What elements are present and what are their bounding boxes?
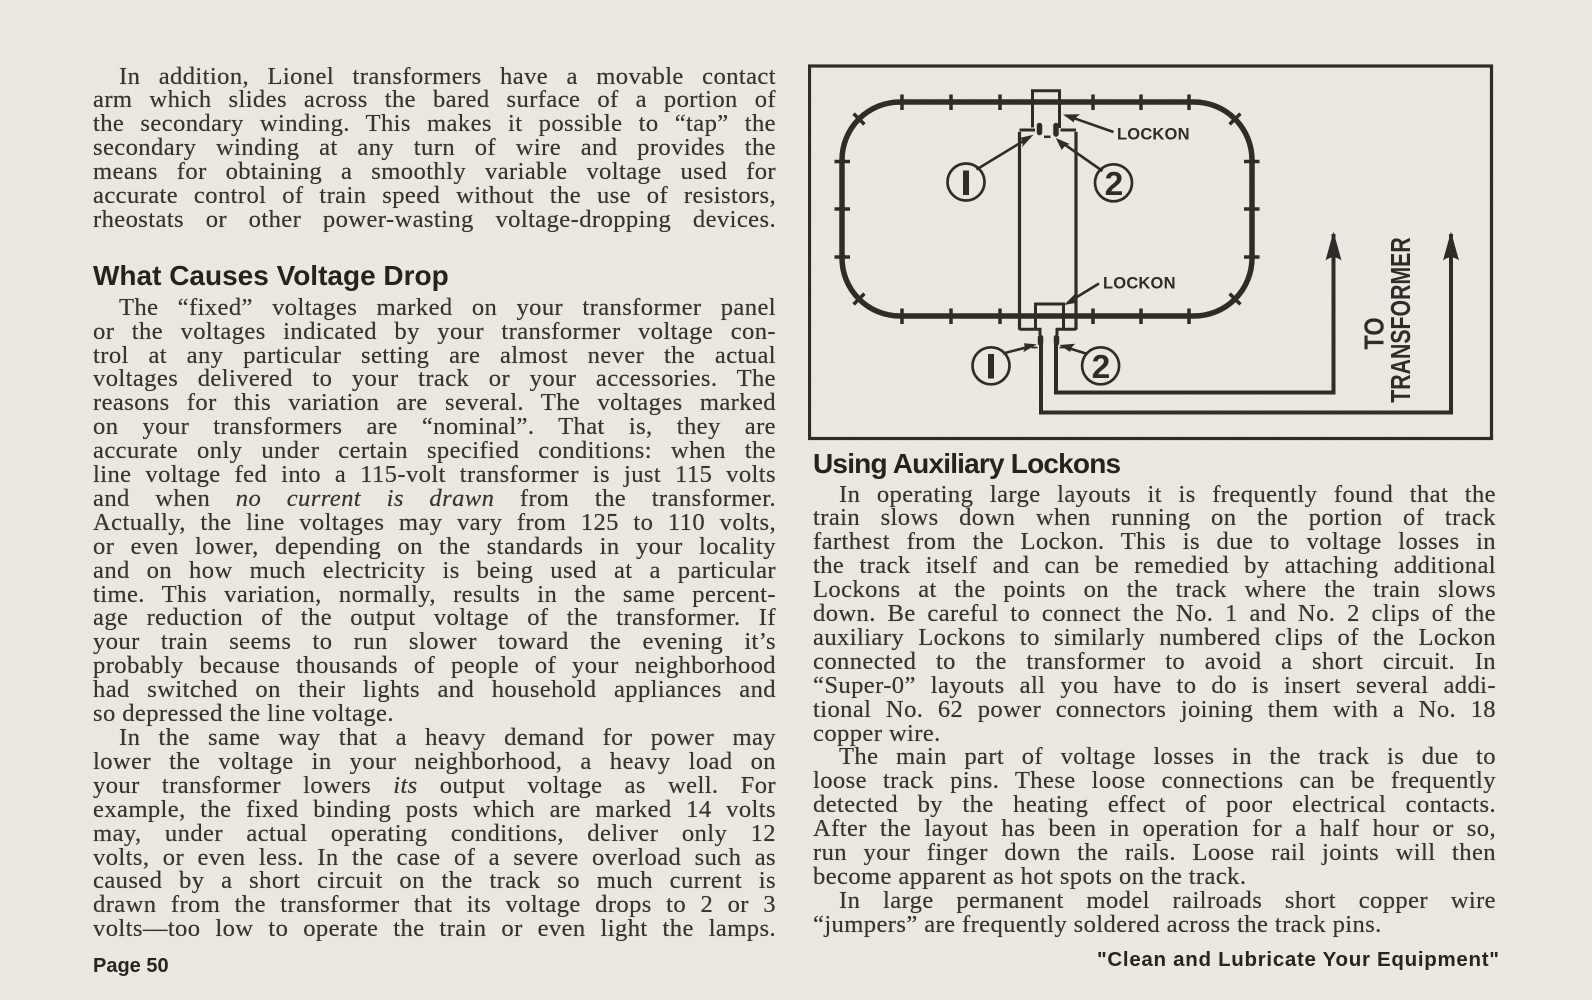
svg-text:2: 2 xyxy=(1092,349,1111,386)
svg-text:2: 2 xyxy=(1105,166,1124,203)
svg-text:TRANSFORMER: TRANSFORMER xyxy=(1385,237,1417,402)
svg-text:LOCKON: LOCKON xyxy=(1103,275,1176,293)
svg-text:LOCKON: LOCKON xyxy=(1117,126,1190,144)
